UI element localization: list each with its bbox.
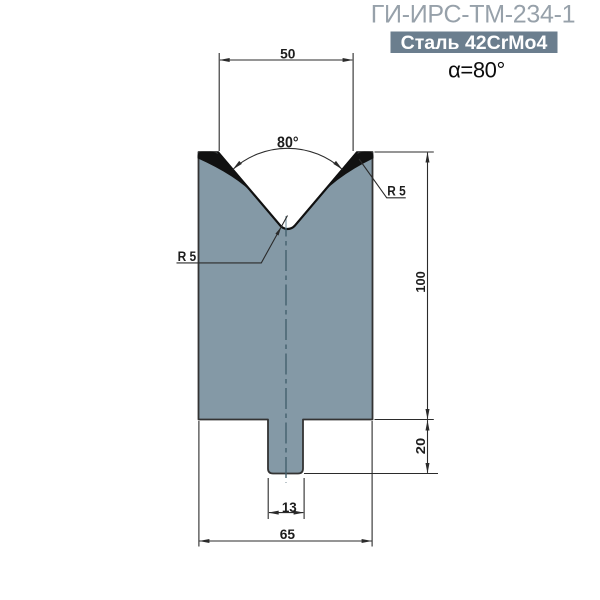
- svg-text:Сталь 42CrMo4: Сталь 42CrMo4: [401, 32, 548, 54]
- svg-text:R 5: R 5: [178, 249, 197, 264]
- svg-text:ГИ-ИРС-ТМ-234-1: ГИ-ИРС-ТМ-234-1: [371, 0, 575, 28]
- svg-text:100: 100: [414, 271, 428, 292]
- svg-text:50: 50: [280, 46, 295, 61]
- svg-text:80°: 80°: [277, 134, 299, 151]
- svg-text:R 5: R 5: [387, 183, 406, 198]
- svg-text:α=80°: α=80°: [448, 57, 505, 82]
- svg-text:65: 65: [280, 527, 296, 542]
- svg-text:13: 13: [282, 500, 297, 515]
- svg-text:20: 20: [414, 438, 428, 454]
